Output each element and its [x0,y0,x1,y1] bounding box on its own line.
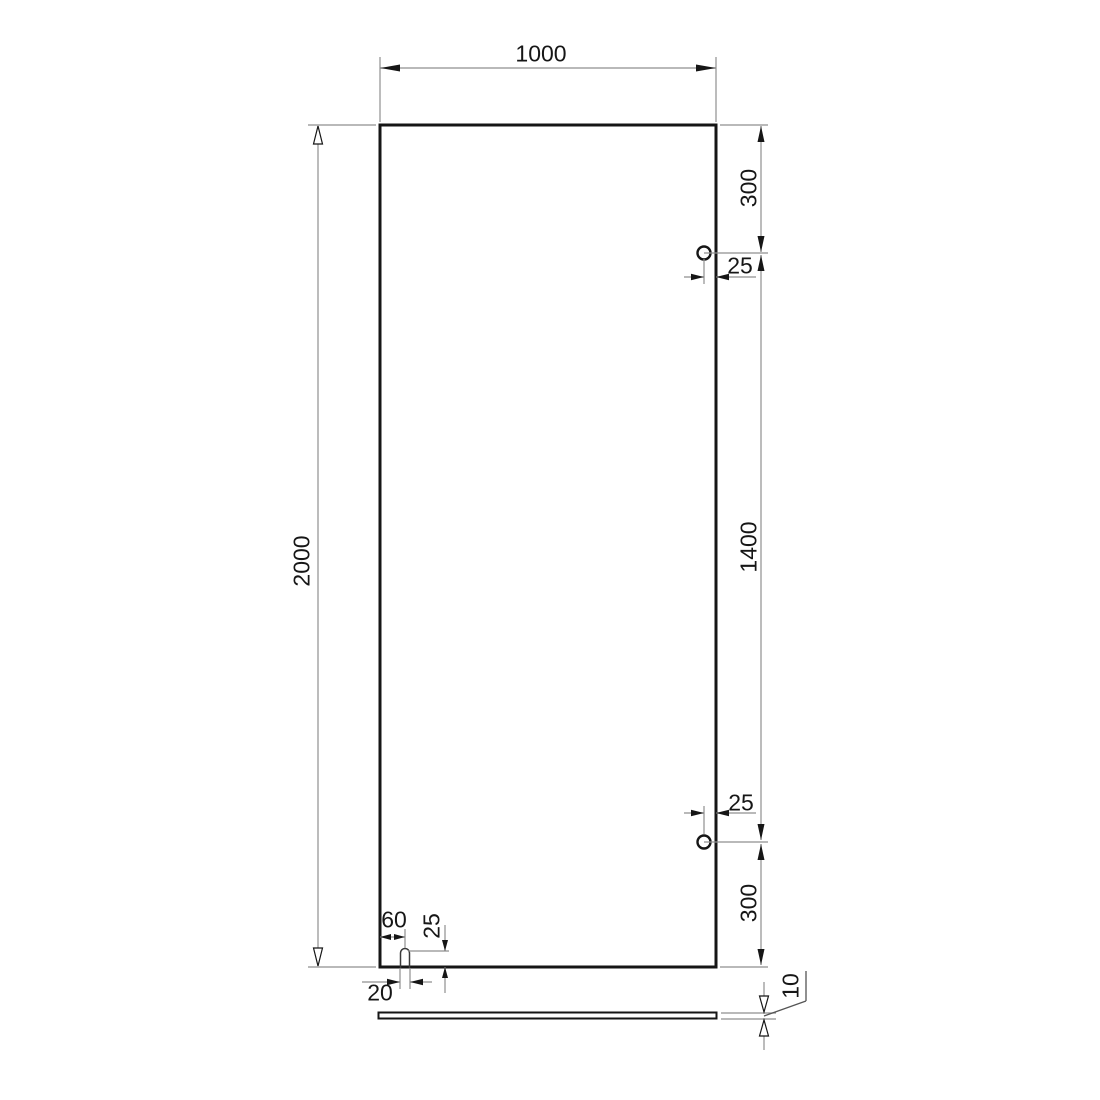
panel-front-view [380,125,716,968]
dim-label-slot-offset: 60 [381,909,407,932]
dim-label-height: 2000 [291,535,314,586]
dim-width [380,57,716,122]
technical-drawing-canvas: 1000 2000 300 25 1400 25 300 60 25 20 10 [0,0,1100,1100]
panel-outline [380,125,716,967]
arrowhead [696,65,716,72]
dim-label-width: 1000 [515,43,566,66]
dim-label-hole-spacing: 1400 [738,521,761,572]
open-arrowhead [760,996,769,1012]
dim-label-thickness: 10 [780,973,803,999]
panel-side-view [379,1013,717,1019]
open-arrowhead [760,1020,769,1036]
arrowhead [410,979,423,985]
leader-line [764,1001,806,1016]
glass-thickness-slab [379,1013,717,1019]
dim-label-slot-depth: 25 [421,913,444,939]
dim-height [308,125,376,967]
arrowhead [758,255,765,271]
arrowhead [758,949,765,965]
arrowhead [758,236,765,252]
open-arrowhead [314,126,323,144]
arrowhead [380,65,400,72]
open-arrowhead [314,948,323,966]
arrowhead [758,126,765,142]
drawing-geometry [0,0,1100,1100]
arrowhead [758,824,765,840]
dim-label-hole-top-edge: 25 [727,255,753,278]
dim-label-hole-bottom-offset: 300 [738,884,761,922]
arrowhead [442,967,448,978]
dim-label-hole-top-offset: 300 [738,169,761,207]
dim-label-hole-bottom-edge: 25 [728,792,754,815]
arrowhead [758,844,765,860]
arrowhead [716,810,729,816]
dim-label-slot-width: 20 [367,982,393,1005]
